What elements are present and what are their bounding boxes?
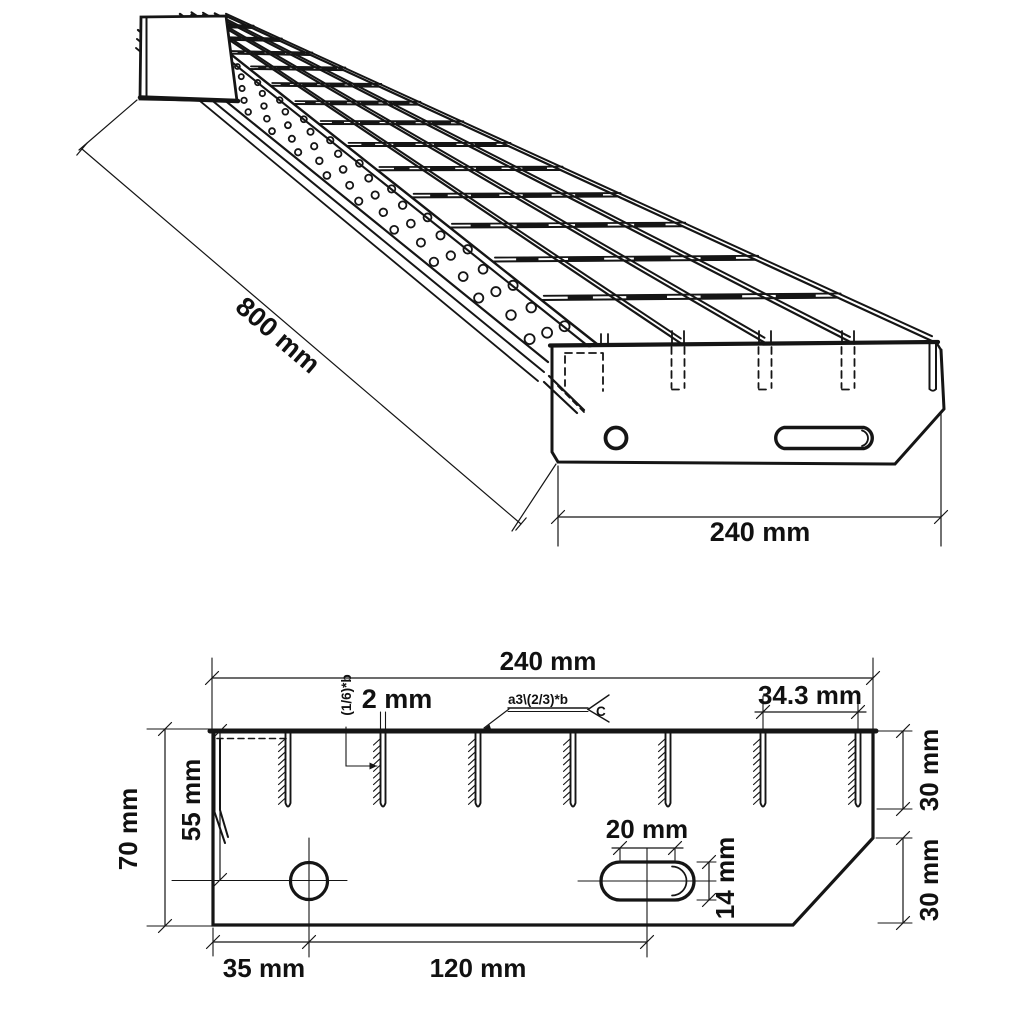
dim-label-240-iso: 240 mm (710, 517, 811, 547)
dim-label-30-top: 30 mm (914, 729, 944, 811)
technical-drawing: 800 mm 240 mm (0, 0, 1024, 1024)
dim-label-35: 35 mm (223, 953, 305, 983)
drawing-page: 800 mm 240 mm (0, 0, 1024, 1024)
weld-symbol-label: a3\(2/3)*b (508, 692, 568, 707)
canvas-background (0, 0, 1024, 1024)
weld-symbol-tail-label: C (596, 704, 606, 719)
weld-note-label: (1/6)*b (339, 674, 354, 715)
end-plate-far-outline (140, 16, 237, 101)
dim-label-30-bottom: 30 mm (914, 839, 944, 921)
dim-label-14: 14 mm (710, 837, 740, 919)
dim-label-120: 120 mm (430, 953, 527, 983)
dim-label-70: 70 mm (113, 788, 143, 870)
dim-label-2: 2 mm (362, 684, 433, 714)
dim-label-240-section: 240 mm (500, 646, 597, 676)
dim-label-20: 20 mm (606, 814, 688, 844)
end-plate-far (140, 16, 238, 101)
dim-label-55: 55 mm (176, 759, 206, 841)
dim-label-34-3: 34.3 mm (758, 680, 862, 710)
end-plate-near (544, 331, 944, 464)
